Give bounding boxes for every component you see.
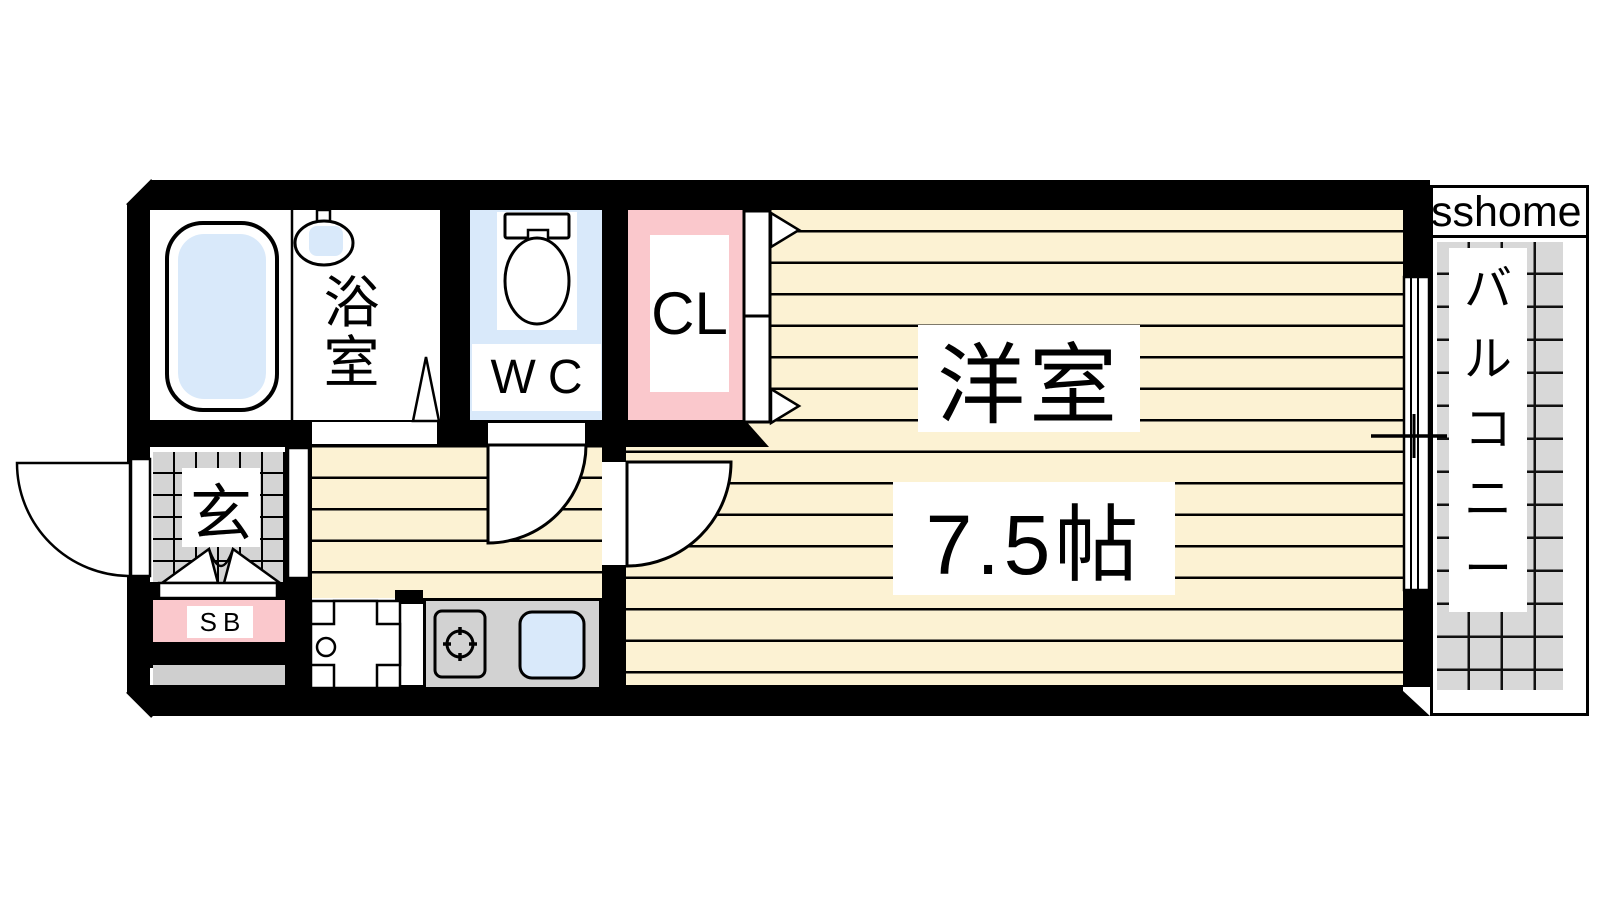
- entrance-step-icon: [159, 549, 280, 598]
- closet-label-text: CL: [651, 276, 728, 352]
- floor-plan: バルコニー sshome: [0, 0, 1600, 900]
- main-room-label-text: 洋室: [937, 315, 1121, 442]
- entrance-partition: [288, 448, 309, 578]
- fixtures-overlay: [0, 0, 1600, 900]
- entrance-label: 玄: [182, 468, 260, 547]
- closet-label: CL: [650, 235, 729, 392]
- balcony-label: バルコニー: [1449, 248, 1527, 612]
- window-icon: [1371, 277, 1447, 590]
- bathroom-fold-door-icon: [413, 357, 439, 421]
- shoe-box-label-text: SB: [200, 607, 247, 638]
- wc-label-text: WC: [491, 350, 595, 405]
- toilet-icon: [497, 212, 577, 330]
- washer-pan-icon: [311, 601, 400, 688]
- bathroom-sink-icon: [295, 210, 353, 265]
- entrance-door-icon: [17, 459, 150, 576]
- main-room-label: 洋室: [918, 325, 1140, 432]
- entrance-label-text: 玄: [190, 463, 252, 553]
- stove-icon: [435, 611, 485, 677]
- wc-label: WC: [472, 344, 601, 411]
- wall-below-closet: [602, 420, 769, 447]
- watermark-text: sshome: [1431, 189, 1582, 235]
- kitchen-sink-icon: [520, 612, 584, 678]
- bathtub-icon: [167, 223, 277, 410]
- balcony-label-text: バルコニー: [1449, 255, 1527, 605]
- main-room-size-label: 7.5帖: [893, 482, 1175, 595]
- main-room-size-text: 7.5帖: [926, 478, 1143, 599]
- shoe-box-label: SB: [187, 606, 253, 638]
- room-door-icon: [627, 462, 731, 566]
- closet-door-icon: [744, 211, 799, 423]
- watermark-box: sshome: [1430, 185, 1589, 238]
- wc-door-icon: [488, 445, 586, 543]
- bathroom-label: 浴室: [315, 272, 388, 394]
- bathroom-label-text: 浴室: [315, 273, 388, 393]
